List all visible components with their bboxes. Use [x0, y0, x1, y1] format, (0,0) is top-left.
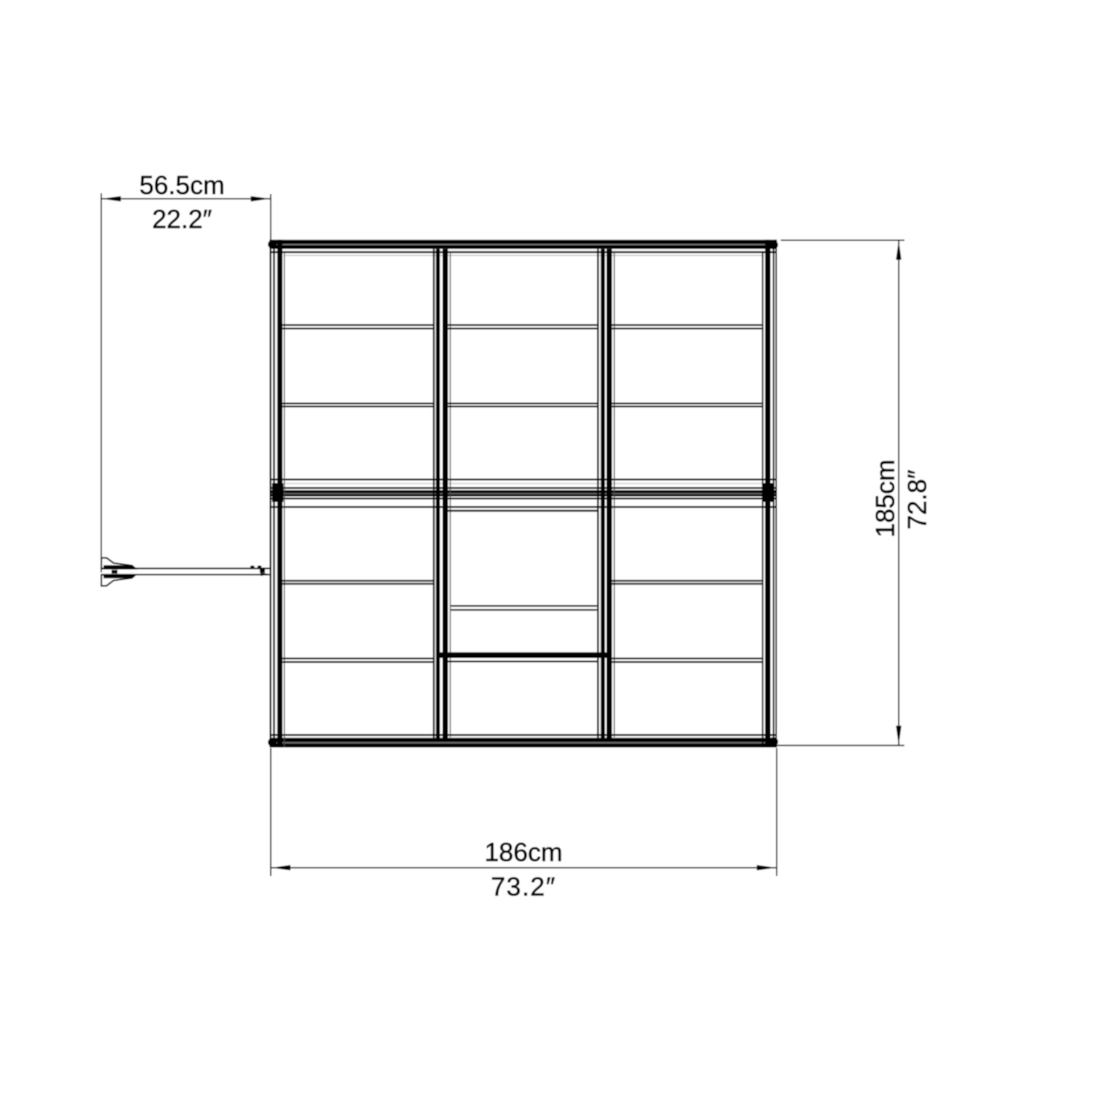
svg-text:22.2″: 22.2″ — [152, 204, 212, 234]
svg-text:73.2″: 73.2″ — [491, 872, 556, 902]
svg-text:56.5cm: 56.5cm — [139, 170, 224, 200]
svg-text:185cm: 185cm — [870, 459, 900, 537]
svg-text:186cm: 186cm — [484, 837, 562, 867]
svg-text:72.8″: 72.8″ — [902, 470, 932, 530]
